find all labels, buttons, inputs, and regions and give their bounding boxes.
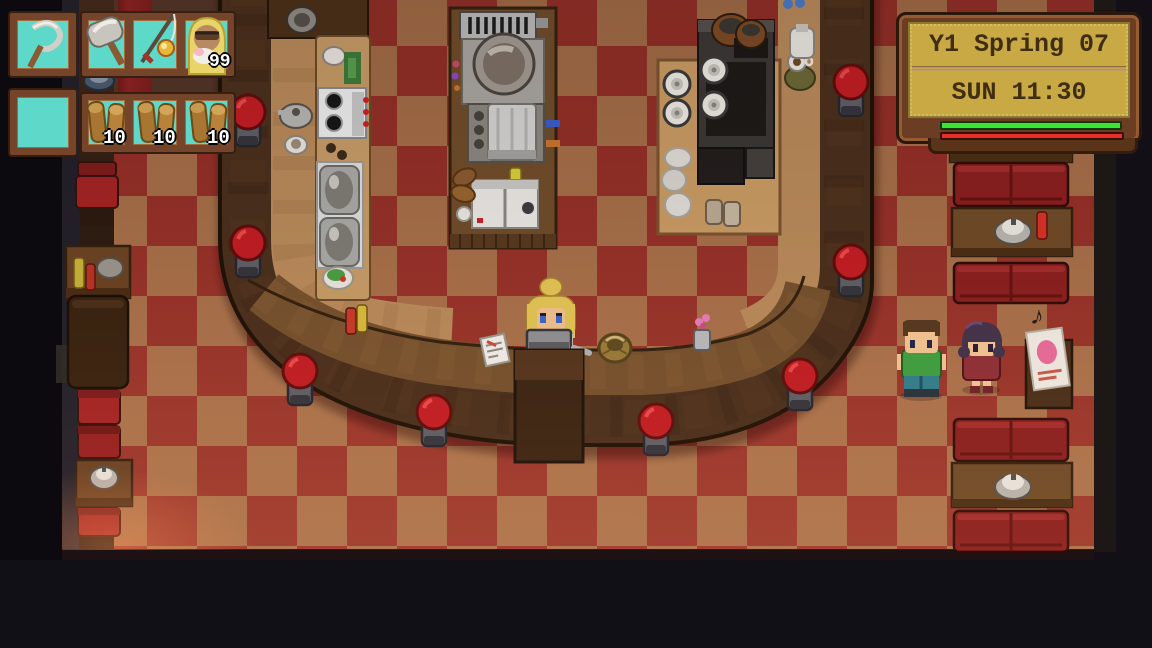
svg-text:♪: ♪ xyxy=(1028,300,1047,332)
